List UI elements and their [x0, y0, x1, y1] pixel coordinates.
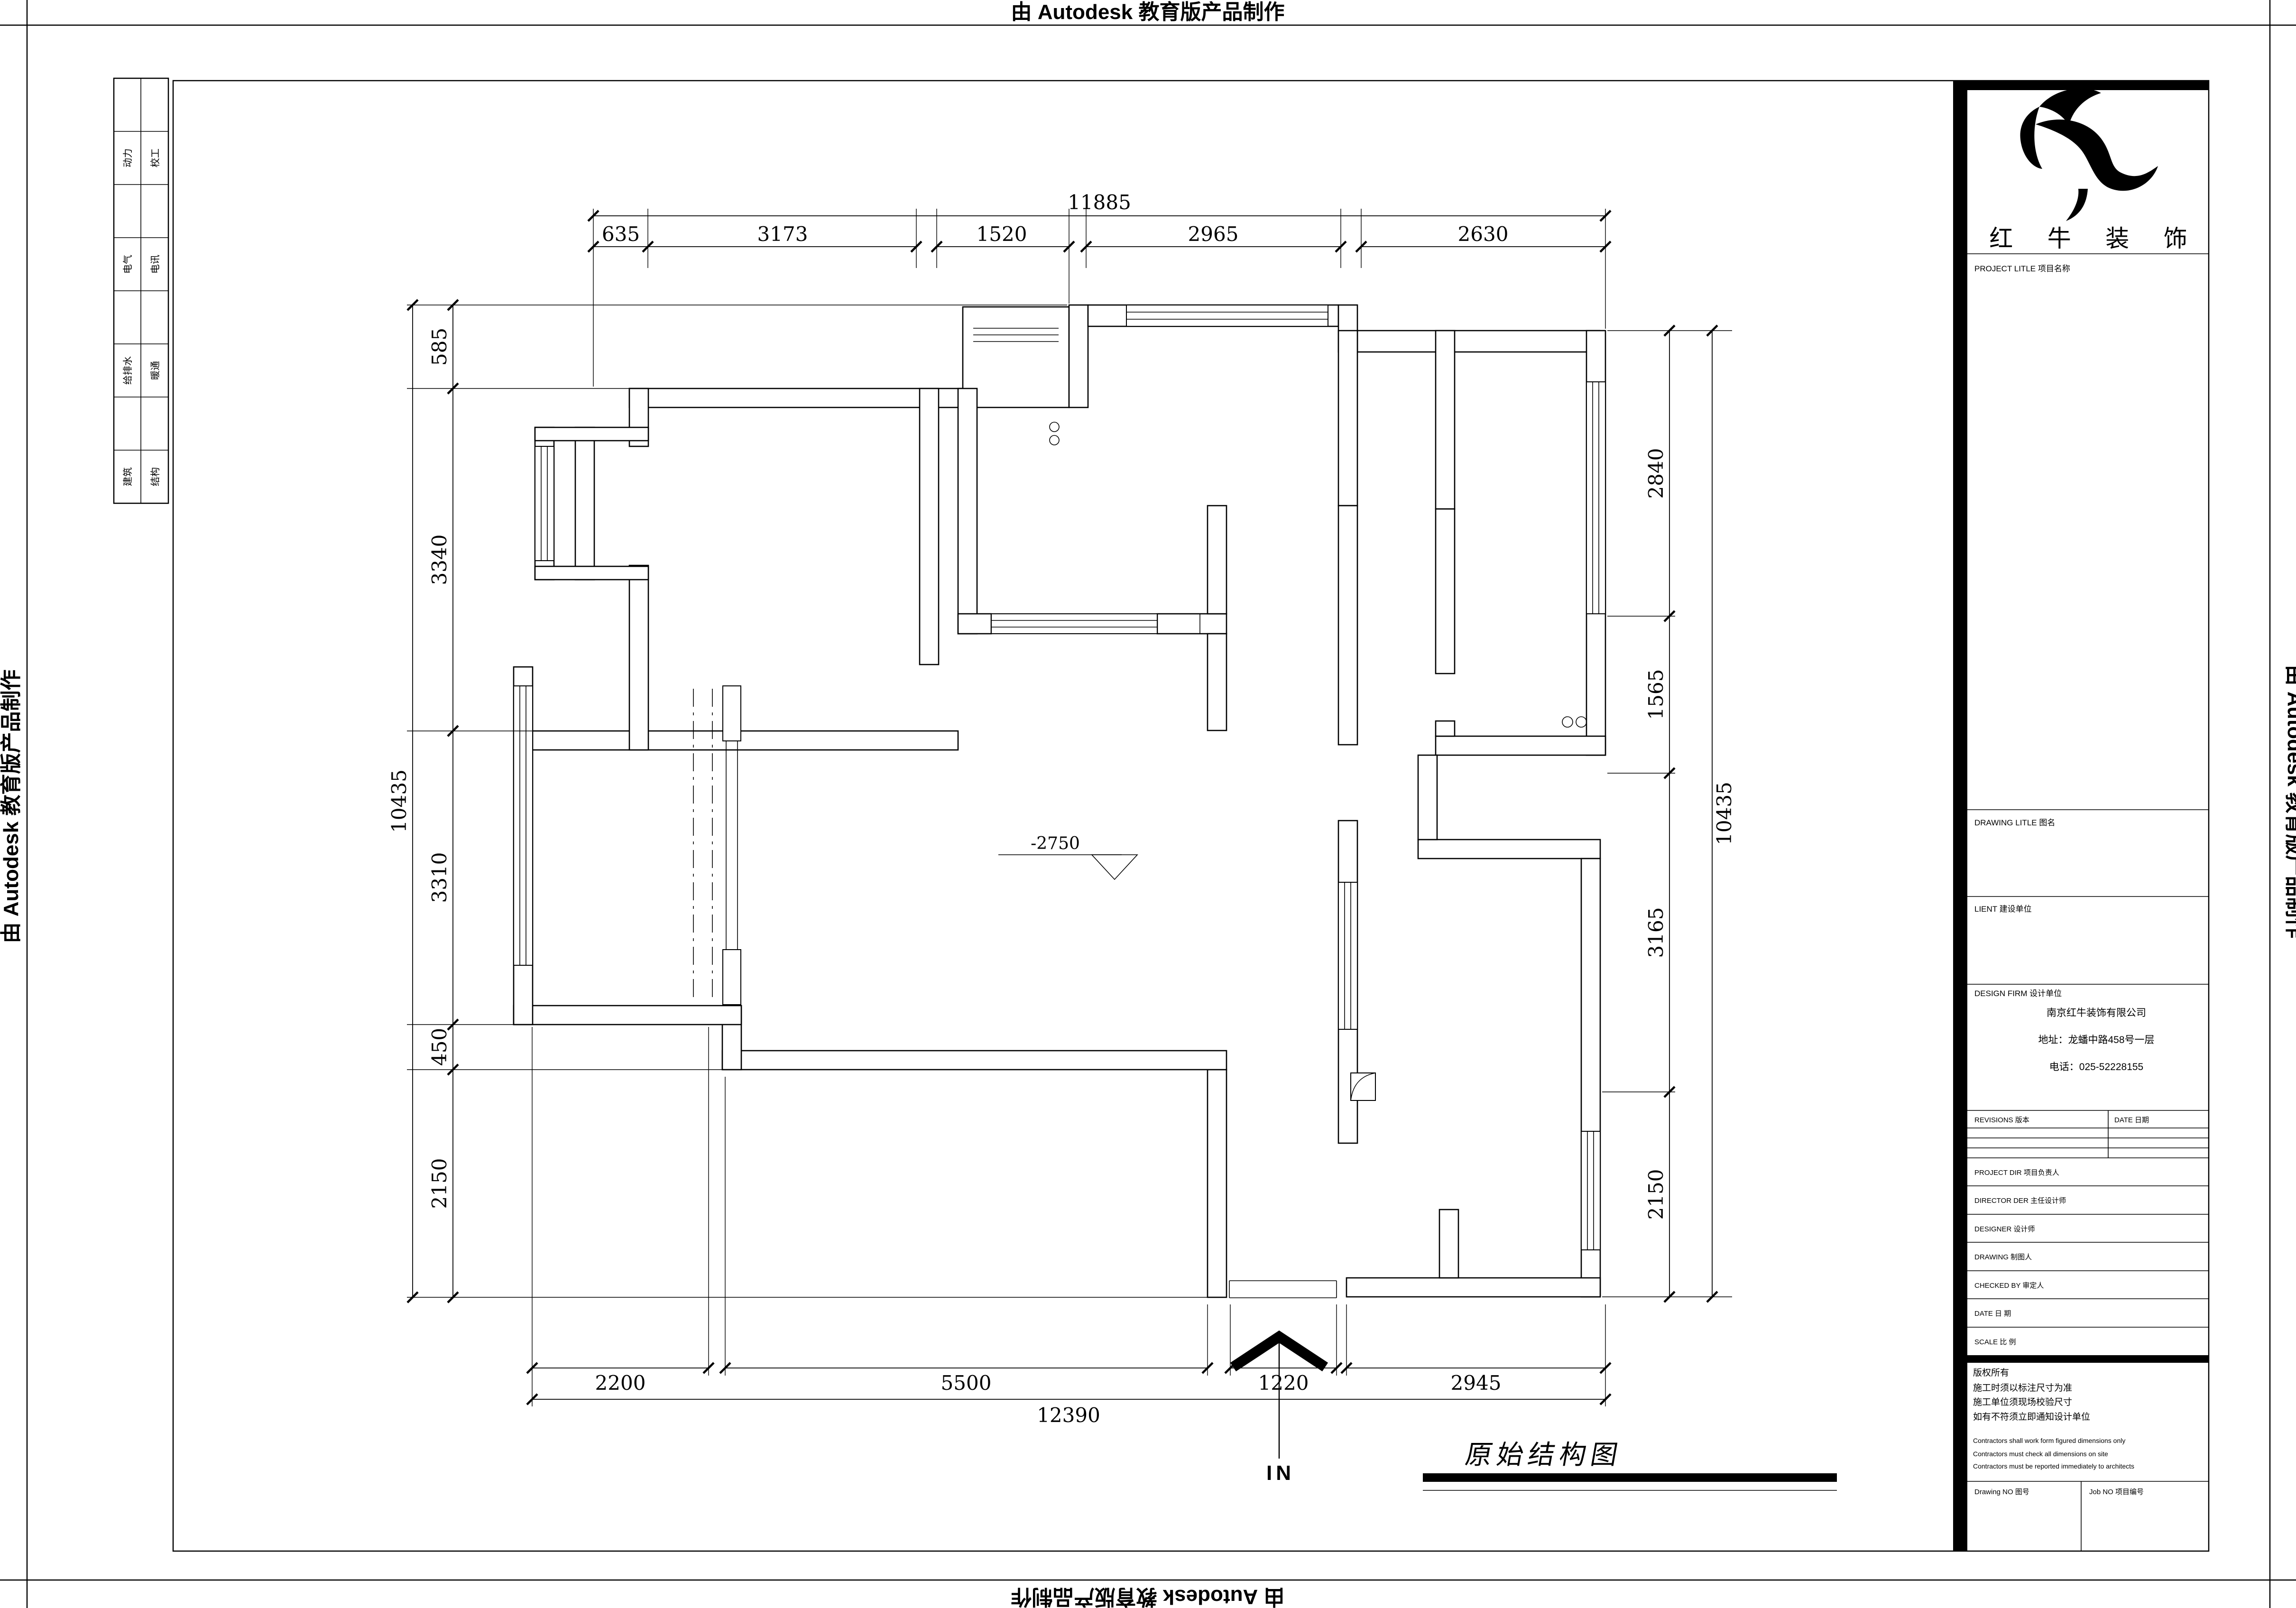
pipe-circle	[1050, 435, 1059, 445]
dim-right-overall: 10435	[1713, 782, 1736, 845]
scale-label: SCALE 比 例	[1974, 1338, 2016, 1346]
company-name: 南京红牛装饰有限公司	[2047, 1007, 2146, 1018]
dim-left-seg: 585	[428, 328, 451, 366]
note-en-2: Contractors must check all dimensions on…	[1973, 1450, 2108, 1458]
note-en-1: Contractors shall work form figured dime…	[1973, 1437, 2125, 1444]
dim-left-seg: 3310	[428, 852, 451, 903]
dim-left-seg: 3340	[428, 535, 451, 585]
dim-top-seg: 635	[602, 222, 640, 246]
page-border: 由 Autodesk 教育版产品制作 由 Autodesk 教育版产品制作 由 …	[0, 0, 2296, 1608]
drawing-no-label: Drawing NO 图号	[1974, 1488, 2029, 1496]
dim-top-seg: 2630	[1458, 222, 1509, 246]
discipline-table: 动力 校工 电气 电讯 给排水 暖通 建筑 结构	[114, 78, 168, 503]
drawing-title-label: DRAWING LITLE 图名	[1974, 818, 2055, 827]
dim-top-seg: 3173	[757, 222, 808, 246]
window	[991, 614, 1157, 634]
dim-right-seg: 3165	[1644, 907, 1668, 958]
revisions-label: REVISIONS 版本	[1974, 1116, 2029, 1124]
window	[535, 446, 554, 561]
design-firm-label: DESIGN FIRM 设计单位	[1974, 989, 2062, 998]
discipline-label: 校工	[150, 148, 161, 167]
drawing-title-text: 原始结构图	[1463, 1441, 1625, 1470]
dim-right-seg: 2840	[1644, 448, 1668, 499]
date-label: DATE 日 期	[1974, 1310, 2011, 1318]
dim-bottom-seg: 2200	[595, 1371, 646, 1395]
dim-left-seg: 2150	[428, 1158, 451, 1209]
watermark-right: 由 Autodesk 教育版产品制作	[2283, 665, 2296, 939]
dim-top-seg: 2965	[1188, 222, 1239, 246]
dim-bottom-seg: 5500	[941, 1371, 992, 1395]
dim-top-seg: 1520	[977, 222, 1027, 246]
window	[1338, 882, 1357, 1029]
director-label: DIRECTOR DER 主任设计师	[1974, 1197, 2066, 1205]
client-label: LIENT 建设单位	[1974, 905, 2032, 914]
level-marker: -2750	[998, 834, 1137, 879]
dim-right-seg: 1565	[1644, 669, 1668, 720]
discipline-label: 结构	[150, 467, 161, 486]
dim-bottom-seg: 1220	[1258, 1371, 1309, 1395]
window	[1586, 382, 1605, 614]
discipline-label: 给排水	[122, 356, 133, 385]
dim-top-overall: 11885	[1068, 191, 1131, 214]
window	[514, 686, 533, 965]
discipline-label: 动力	[122, 148, 133, 167]
redniu-logo-icon	[2020, 88, 2158, 221]
pipe-circle	[1562, 717, 1573, 727]
brand-name: 红 牛 装 饰	[1989, 225, 2202, 252]
watermark-left: 由 Autodesk 教育版产品制作	[0, 670, 23, 943]
watermark-bottom: 由 Autodesk 教育版产品制作	[1011, 1585, 1285, 1608]
note-cn-1: 施工时须以标注尺寸为准	[1973, 1383, 2072, 1393]
drawing-title: 原始结构图	[1423, 1441, 1837, 1490]
dim-left-seg: 450	[428, 1028, 451, 1066]
pipe-circle	[1576, 717, 1586, 727]
note-cn-3: 如有不符须立即通知设计单位	[1973, 1412, 2090, 1422]
dim-bottom-seg: 2945	[1451, 1371, 1502, 1395]
pipe-circle	[1050, 422, 1059, 432]
discipline-label: 电讯	[150, 255, 161, 274]
company-phone: 电话：025-52228155	[2049, 1062, 2143, 1072]
entrance-label: IN	[1266, 1461, 1295, 1485]
job-no-label: Job NO 项目编号	[2089, 1488, 2144, 1496]
dim-left-overall: 10435	[387, 769, 411, 833]
note-cn-2: 施工单位须现场校验尺寸	[1973, 1397, 2072, 1407]
duct-shaft	[963, 307, 1069, 407]
project-title-label: PROJECT LITLE 项目名称	[1974, 264, 2070, 273]
window	[1126, 305, 1328, 326]
drawing-by-label: DRAWING 制图人	[1974, 1253, 2032, 1261]
copyright-note: 版权所有	[1973, 1368, 2009, 1378]
discipline-label: 暖通	[150, 361, 161, 380]
discipline-label: 电气	[122, 255, 133, 274]
revision-date-label: DATE 日期	[2114, 1116, 2149, 1124]
titleblock-divider-bar	[1953, 81, 1967, 1551]
watermark-top: 由 Autodesk 教育版产品制作	[1011, 0, 1285, 24]
designer-label: DESIGNER 设计师	[1974, 1225, 2035, 1233]
dimensions-right: 2840 1565 3165 2150 10435	[1602, 325, 1736, 1302]
door-leaf	[1351, 1073, 1375, 1100]
dimensions-left: 10435 585 3340 3310 450 2150	[387, 300, 1208, 1303]
level-marker-value: -2750	[1031, 834, 1080, 853]
floor-plan-walls	[514, 305, 1605, 1297]
title-block: 红 牛 装 饰 PROJECT LITLE 项目名称 DRAWING LITLE…	[1967, 88, 2209, 1551]
entrance-arrow-icon: IN	[1233, 1337, 1325, 1485]
window	[1581, 1131, 1600, 1250]
project-dir-label: PROJECT DIR 项目负责人	[1974, 1169, 2059, 1177]
dimensions-top: 11885 635 3173 1520 2965 2630	[588, 191, 1611, 387]
dim-right-seg: 2150	[1644, 1169, 1668, 1220]
company-address: 地址：龙蟠中路458号一层	[2038, 1035, 2154, 1045]
note-en-3: Contractors must be reported immediately…	[1973, 1462, 2134, 1470]
drawing-frame	[173, 81, 2209, 1551]
checked-by-label: CHECKED BY 审定人	[1974, 1282, 2044, 1290]
dim-bottom-overall: 12390	[1037, 1404, 1100, 1427]
discipline-label: 建筑	[122, 467, 133, 486]
drawing-title-underline	[1423, 1473, 1837, 1482]
